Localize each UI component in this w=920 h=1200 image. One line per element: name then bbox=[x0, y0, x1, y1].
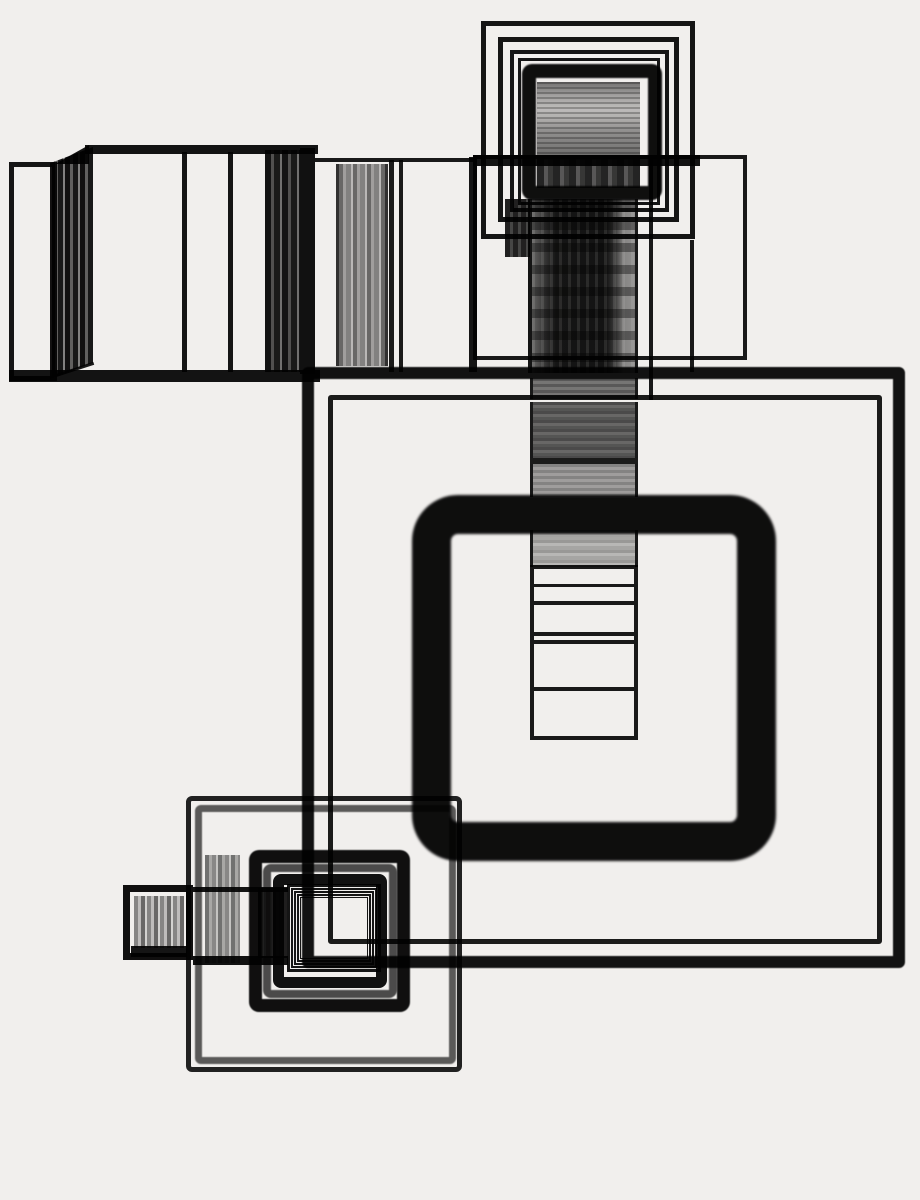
cluster-thin-square-5 bbox=[300, 897, 368, 959]
band-stripes-column bbox=[336, 164, 388, 366]
band-divider-390 bbox=[389, 160, 394, 372]
small-band-stripes-2 bbox=[258, 888, 287, 958]
band-divider-400 bbox=[399, 160, 403, 372]
box-stripes-right bbox=[265, 150, 300, 372]
box-divider-a bbox=[182, 152, 187, 372]
band-top-line bbox=[315, 158, 475, 162]
artwork-canvas bbox=[0, 0, 920, 1200]
top-thick-square bbox=[522, 64, 662, 200]
box-left-rect bbox=[9, 162, 57, 381]
band-divider-692 bbox=[690, 240, 694, 372]
box-divider-b bbox=[228, 152, 233, 372]
box-stripes-left bbox=[50, 147, 93, 379]
column-dark-upper bbox=[528, 199, 638, 373]
small-square-stripes bbox=[134, 896, 184, 948]
small-square-bottom-fill bbox=[131, 946, 187, 957]
column-streak-left bbox=[505, 199, 530, 257]
thick-rounded-square bbox=[412, 495, 776, 861]
small-band-stripes-1 bbox=[205, 855, 240, 963]
box-right-edge bbox=[300, 148, 315, 374]
